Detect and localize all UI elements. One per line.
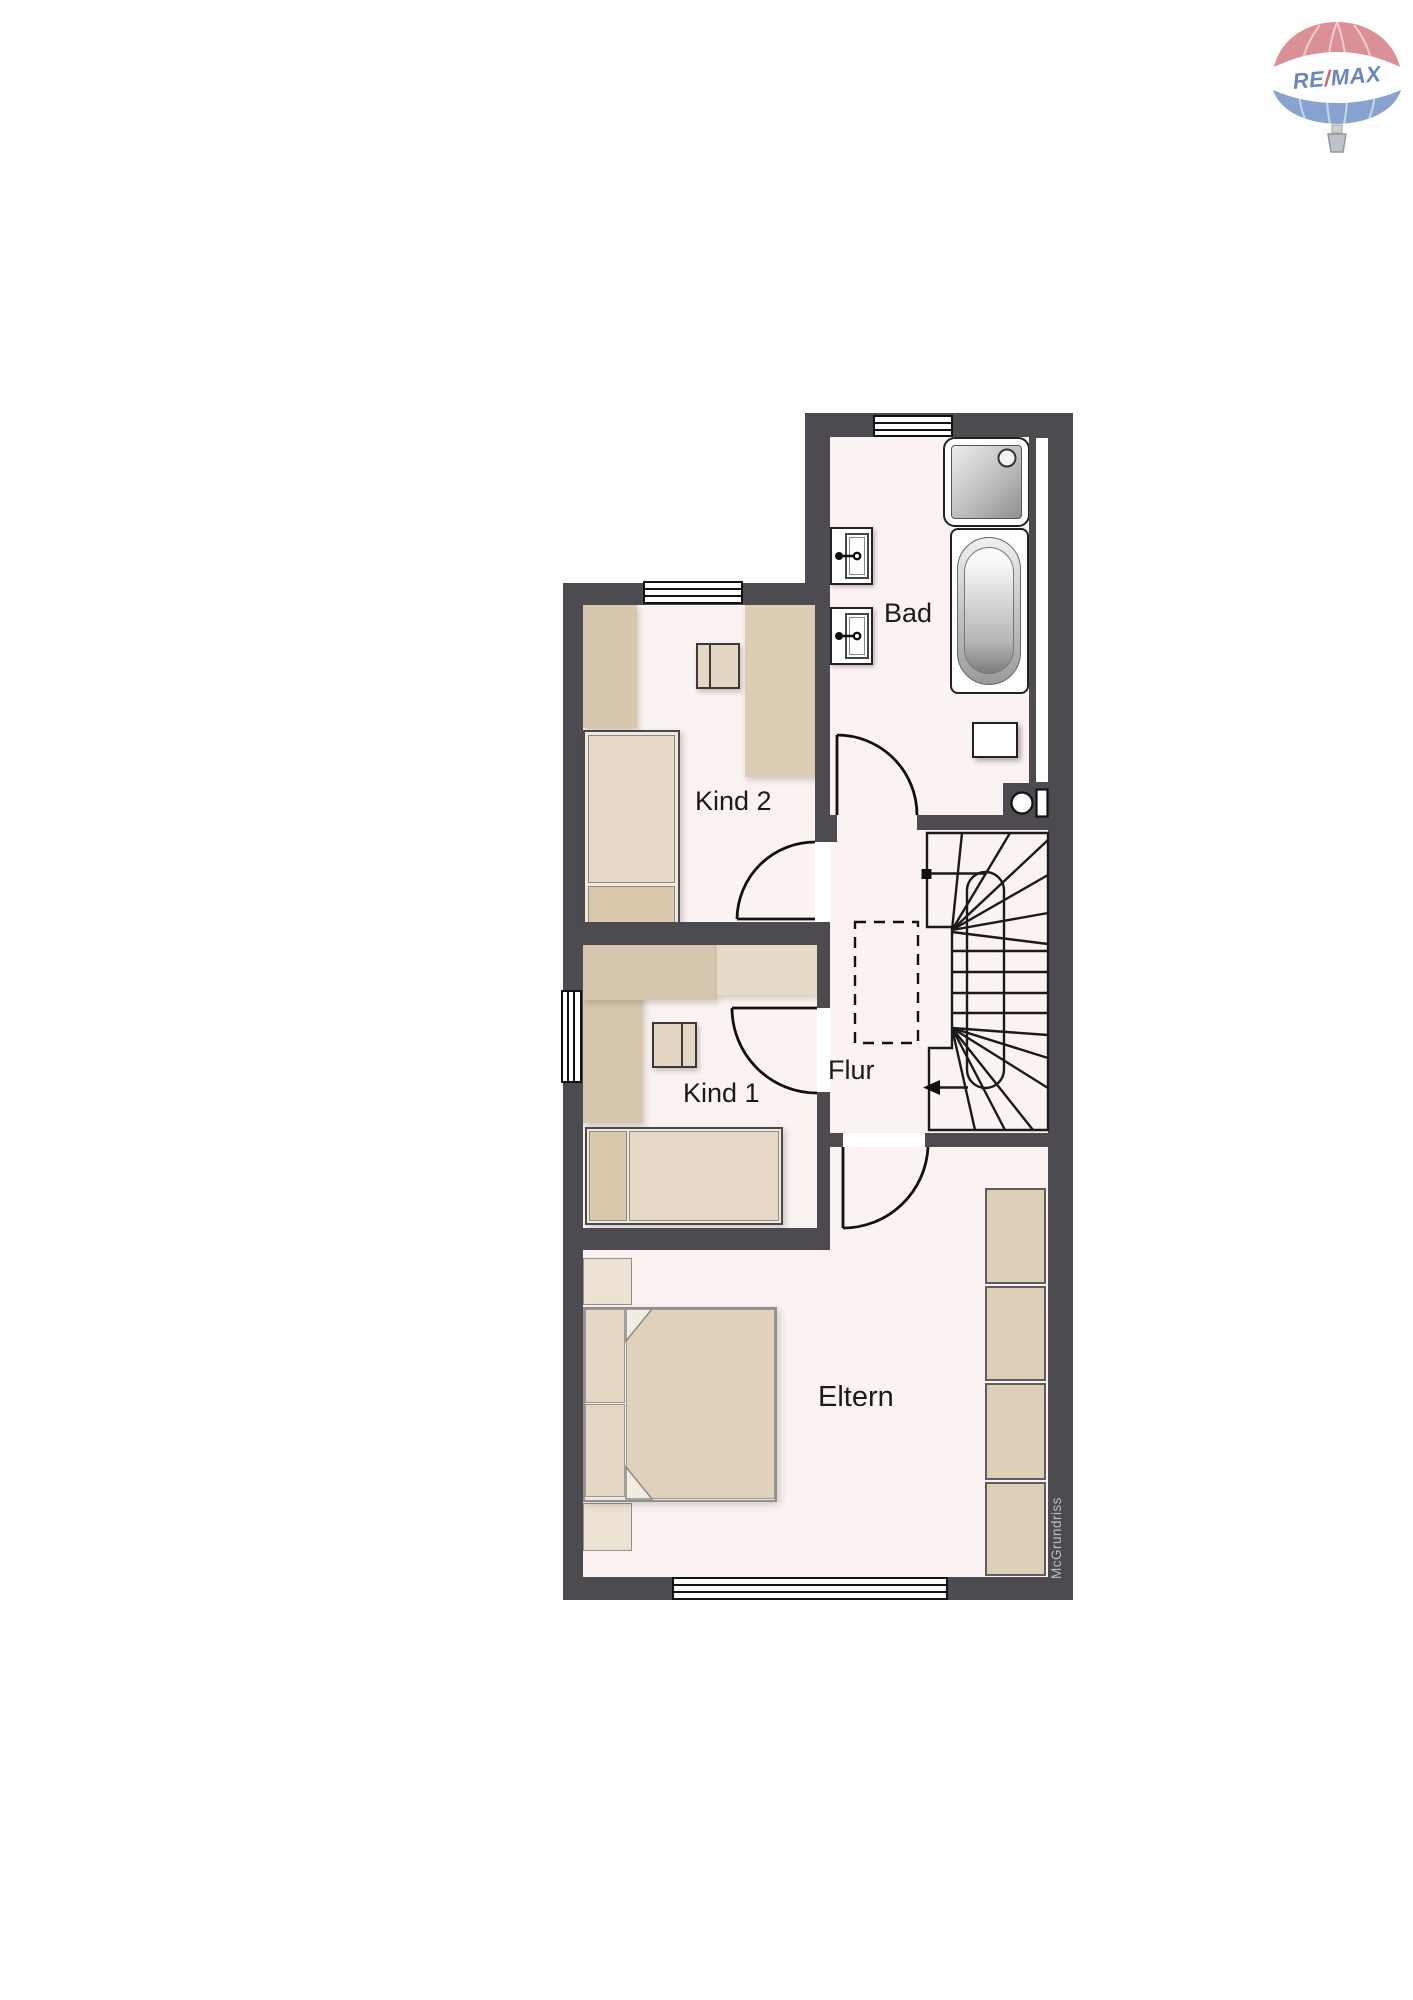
stairs-start-marker <box>922 869 932 879</box>
plan-overlay <box>0 0 1413 2000</box>
balloon-basket <box>1328 134 1346 152</box>
door-eltern <box>843 1147 928 1228</box>
dashed-void-marker <box>855 922 918 1043</box>
staircase <box>927 833 1048 1130</box>
room-label-flur: Flur <box>828 1057 875 1084</box>
room-label-bad: Bad <box>884 600 932 627</box>
remax-balloon-logo: RE/MAX <box>1257 0 1413 160</box>
room-label-eltern: Eltern <box>818 1383 894 1412</box>
room-label-kind2: Kind 2 <box>695 788 772 815</box>
room-label-kind1: Kind 1 <box>683 1080 760 1107</box>
faucet-icon <box>835 552 860 560</box>
door-bad <box>837 735 917 815</box>
watermark-mcgrundriss: McGrundriss <box>1049 1497 1064 1579</box>
shower-drain-icon <box>999 450 1016 467</box>
faucet-icon <box>835 632 860 640</box>
balloon-neck <box>1332 125 1342 133</box>
mattress-fold-icon <box>626 1309 652 1499</box>
stairs-direction-arrow <box>923 1080 940 1095</box>
toilet <box>1012 790 1048 817</box>
door-kind2 <box>737 842 815 919</box>
